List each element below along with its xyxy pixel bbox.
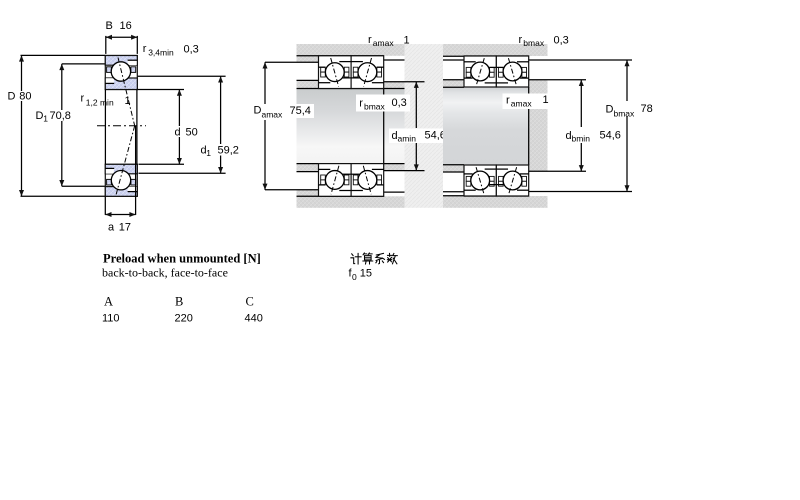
svg-text:1,2 min: 1,2 min bbox=[86, 98, 114, 108]
svg-text:59,2: 59,2 bbox=[218, 145, 239, 157]
svg-text:Preload when unmounted [N]: Preload when unmounted [N] bbox=[103, 252, 261, 266]
svg-text:75,4: 75,4 bbox=[290, 105, 311, 117]
svg-text:54,6: 54,6 bbox=[600, 130, 621, 142]
svg-text:r: r bbox=[506, 95, 510, 107]
svg-text:B: B bbox=[175, 295, 183, 309]
svg-text:54,6: 54,6 bbox=[425, 130, 446, 142]
svg-text:r: r bbox=[143, 43, 147, 55]
svg-text:amax: amax bbox=[262, 110, 284, 120]
svg-text:d: d bbox=[175, 127, 181, 139]
svg-text:110: 110 bbox=[102, 313, 120, 325]
svg-text:16: 16 bbox=[120, 20, 132, 32]
svg-text:D: D bbox=[606, 104, 614, 116]
svg-text:220: 220 bbox=[175, 313, 193, 325]
svg-text:0,3: 0,3 bbox=[554, 35, 569, 47]
svg-text:amin: amin bbox=[398, 134, 417, 144]
svg-text:D: D bbox=[254, 105, 262, 117]
svg-text:1: 1 bbox=[543, 94, 549, 106]
svg-text:C: C bbox=[246, 295, 254, 309]
svg-text:amax: amax bbox=[511, 99, 533, 109]
svg-text:1: 1 bbox=[404, 35, 410, 47]
svg-text:1: 1 bbox=[43, 114, 48, 124]
svg-text:r: r bbox=[81, 93, 85, 105]
svg-text:r: r bbox=[519, 34, 523, 46]
svg-text:bmax: bmax bbox=[364, 102, 386, 112]
svg-text:D: D bbox=[36, 110, 44, 122]
svg-text:440: 440 bbox=[245, 313, 263, 325]
svg-text:0,3: 0,3 bbox=[184, 44, 199, 56]
svg-text:70,8: 70,8 bbox=[50, 110, 71, 122]
svg-text:amax: amax bbox=[373, 38, 395, 48]
svg-text:50: 50 bbox=[186, 127, 198, 139]
svg-text:back-to-back, face-to-face: back-to-back, face-to-face bbox=[102, 266, 228, 280]
svg-text:r: r bbox=[368, 34, 372, 46]
svg-text:D: D bbox=[8, 91, 16, 103]
svg-text:r: r bbox=[359, 97, 363, 109]
svg-text:17: 17 bbox=[119, 222, 131, 234]
svg-text:B: B bbox=[106, 20, 113, 32]
svg-text:bmin: bmin bbox=[572, 134, 591, 144]
svg-text:A: A bbox=[104, 295, 113, 309]
svg-text:15: 15 bbox=[360, 268, 372, 280]
svg-text:3,4min: 3,4min bbox=[148, 48, 174, 58]
svg-text:80: 80 bbox=[19, 91, 31, 103]
svg-text:bmax: bmax bbox=[614, 109, 636, 119]
svg-text:bmax: bmax bbox=[523, 38, 545, 48]
svg-text:a: a bbox=[108, 222, 115, 234]
svg-text:1: 1 bbox=[206, 148, 211, 158]
svg-text:0: 0 bbox=[352, 272, 357, 282]
svg-text:0,3: 0,3 bbox=[392, 97, 407, 109]
svg-text:78: 78 bbox=[641, 103, 653, 115]
